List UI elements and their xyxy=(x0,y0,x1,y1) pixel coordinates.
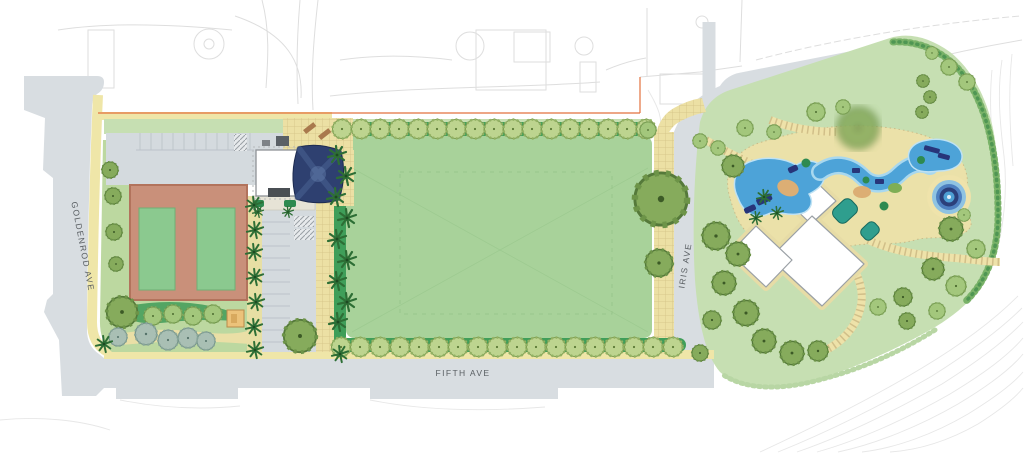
building-entry-canopy xyxy=(268,188,290,197)
rooftop-unit xyxy=(276,136,289,146)
rooftop-unit-small xyxy=(262,140,270,146)
multi-use-field xyxy=(346,136,652,338)
accessible-stall-hatch xyxy=(294,216,314,227)
field-tree-row-top xyxy=(333,120,656,139)
iris-promenade-walk xyxy=(654,132,674,354)
slide-pool xyxy=(909,139,963,172)
site-plan: FIFTH AVE GOLDENROD AVE IRIS AVE xyxy=(0,0,1024,453)
tennis-court-complex xyxy=(130,185,247,300)
accessible-stall-hatch xyxy=(294,229,314,240)
iris-buffer-trees xyxy=(640,122,656,138)
fifth-ave-driveway-apron-2 xyxy=(370,386,558,399)
tennis-court-1 xyxy=(139,208,175,290)
fifth-ave-street xyxy=(100,358,714,388)
crosswalk-hatch xyxy=(234,134,247,151)
street-label-fifth: FIFTH AVE xyxy=(436,368,491,378)
site-plan-canvas: FIFTH AVE GOLDENROD AVE IRIS AVE xyxy=(0,0,1024,453)
garden-structure-door xyxy=(231,314,237,323)
fifth-ave-driveway-apron-1 xyxy=(116,386,238,399)
tennis-court-2 xyxy=(197,208,235,290)
